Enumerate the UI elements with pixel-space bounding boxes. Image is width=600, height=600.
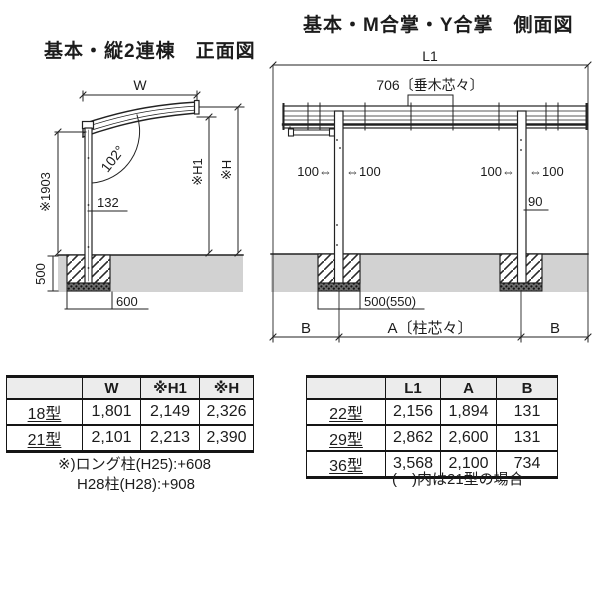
table-row: 18型 1,801 2,149 2,326: [7, 399, 254, 425]
table-row: 21型 2,101 2,213 2,390: [7, 425, 254, 452]
side-table-header-a: A: [441, 377, 497, 400]
cell-h-18: 2,326: [200, 399, 254, 425]
front-table-header-h1: ※H1: [141, 377, 200, 400]
side-view-diagram: L1 706〔垂木芯々〕: [270, 48, 591, 342]
side-size-table-header-row: L1 A B: [307, 377, 558, 400]
side-dim-706-bracket: [408, 95, 453, 106]
side-table-header-blank: [307, 377, 386, 400]
table-row: 29型 2,862 2,600 131: [307, 425, 558, 451]
front-dim-132-label: 132: [97, 195, 119, 210]
front-dim-h1-label: ※H1: [190, 158, 205, 186]
front-dim-500: [48, 256, 58, 291]
side-dim-l1-label: L1: [422, 48, 438, 64]
cell-h1-18: 2,149: [141, 399, 200, 425]
front-dim-500-label: 500: [33, 263, 48, 285]
front-size-table: W ※H1 ※H 18型 1,801 2,149 2,326 21型 2,101…: [6, 375, 254, 453]
front-row-label-18: 18型: [7, 399, 83, 425]
front-table-header-h: ※H: [200, 377, 254, 400]
cell-b-22: 131: [497, 399, 558, 425]
side-row-label-36: 36型: [307, 451, 386, 478]
front-table-note-line1: ※)ロング柱(H25):+608: [58, 453, 211, 474]
side-dim-100-right-in: ⇔100: [529, 164, 564, 179]
side-dim-100-left-out: 100⇔: [297, 164, 332, 179]
row-label-text: 21型: [28, 432, 62, 449]
side-table-header-l1: L1: [386, 377, 441, 400]
front-dim-h-label: ※H: [219, 160, 234, 180]
cell-w-21: 2,101: [83, 425, 141, 452]
cell-h1-21: 2,213: [141, 425, 200, 452]
cell-w-18: 1,801: [83, 399, 141, 425]
side-dim-90-label: 90: [528, 194, 542, 209]
side-dim-footing-label: 500(550): [364, 294, 416, 309]
cell-h-21: 2,390: [200, 425, 254, 452]
side-dim-100-left-in: ⇔100: [346, 164, 381, 179]
front-view-diagram: W 102°: [33, 77, 244, 309]
side-post-right: [518, 111, 527, 283]
cell-b-29: 131: [497, 425, 558, 451]
front-row-label-21: 21型: [7, 425, 83, 452]
front-table-note-line2: H28柱(H28):+908: [77, 473, 195, 494]
row-label-text: 18型: [28, 406, 62, 423]
side-dim-b-left-label: B: [301, 320, 311, 337]
row-label-text: 29型: [329, 432, 363, 449]
row-label-text: 36型: [329, 458, 363, 475]
front-dim-1903: [55, 129, 86, 256]
side-dim-a-label: A〔柱芯々〕: [387, 320, 472, 337]
side-row-label-22: 22型: [307, 399, 386, 425]
front-dim-1903-label: ※1903: [38, 172, 53, 212]
side-roof: [283, 103, 587, 130]
cell-l1-29: 2,862: [386, 425, 441, 451]
cell-a-29: 2,600: [441, 425, 497, 451]
row-label-text: 22型: [329, 406, 363, 423]
side-table-header-b: B: [497, 377, 558, 400]
side-row-label-29: 29型: [307, 425, 386, 451]
front-table-header-w: W: [83, 377, 141, 400]
side-table-note: ( )内は21型の場合: [392, 468, 524, 489]
front-table-header-blank: [7, 377, 83, 400]
front-roof: [83, 101, 199, 138]
front-dim-600-label: 600: [116, 294, 138, 309]
front-roof-end-cap: [195, 101, 200, 115]
cell-l1-22: 2,156: [386, 399, 441, 425]
front-size-table-header-row: W ※H1 ※H: [7, 377, 254, 400]
side-size-table: L1 A B 22型 2,156 1,894 131 29型 2,862 2,6…: [306, 375, 558, 479]
technical-drawing-canvas: W 102°: [0, 0, 600, 600]
table-row: 22型 2,156 1,894 131: [307, 399, 558, 425]
side-dim-b-right-label: B: [550, 320, 560, 337]
side-post-left: [335, 111, 344, 283]
cell-a-22: 1,894: [441, 399, 497, 425]
front-angle-label: 102°: [97, 142, 127, 175]
front-dim-w-label: W: [133, 77, 147, 93]
side-dim-100-right-out: 100⇔: [480, 164, 515, 179]
carport-drawing-page: 基本・縦2連棟 正面図 基本・M合掌・Y合掌 側面図: [0, 0, 600, 600]
side-dim-706-label: 706〔垂木芯々〕: [376, 77, 483, 93]
